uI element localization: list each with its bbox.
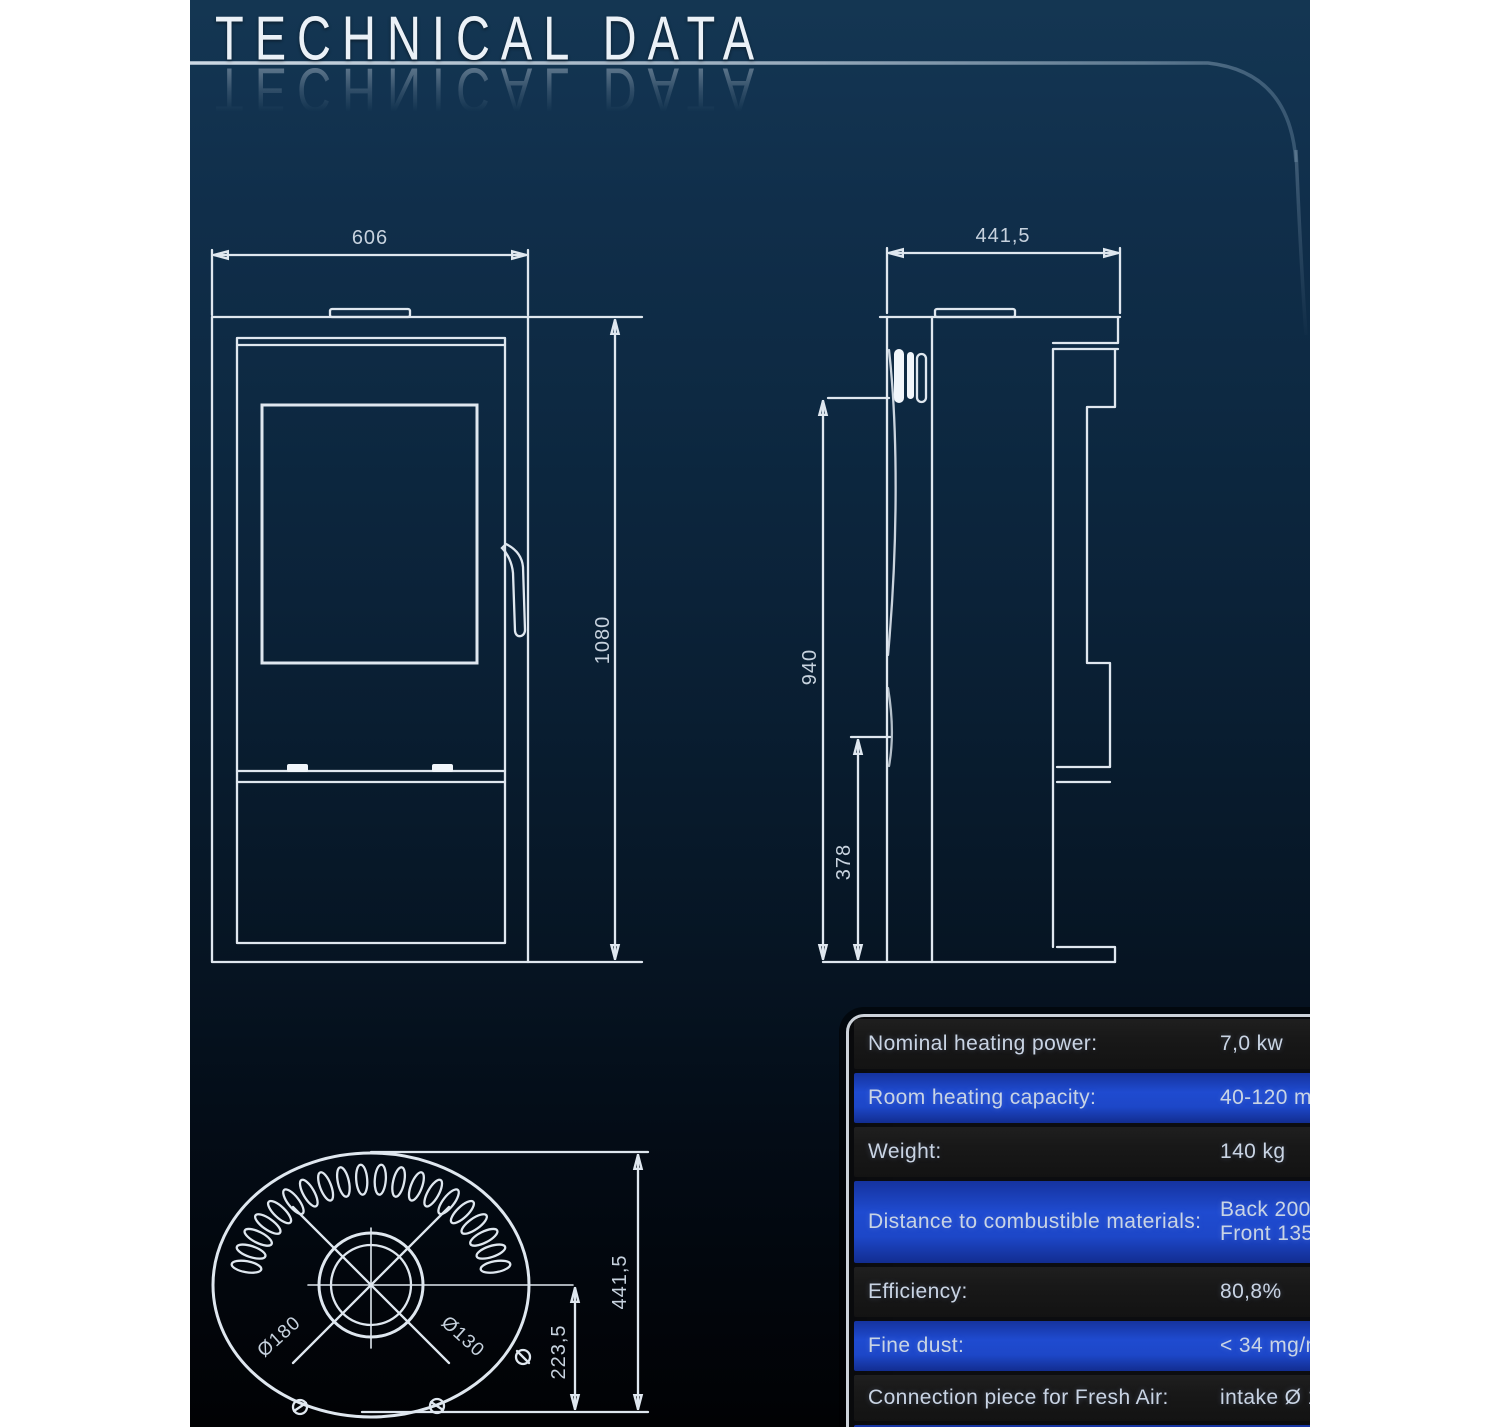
table-row: Fine dust: < 34 mg/m³ [854, 1321, 1310, 1371]
top-depth-dim-label: 441,5 [609, 1254, 631, 1309]
table-row: Distance to combustible materials: Back … [854, 1181, 1310, 1263]
spec-value: 40-120 m² [1220, 1086, 1310, 1110]
table-row: Nominal heating power: 7,0 kw [854, 1019, 1310, 1069]
spec-value: 140 kg [1220, 1140, 1310, 1164]
spec-label: Weight: [854, 1140, 1220, 1164]
spec-label: Nominal heating power: [854, 1032, 1220, 1056]
datasheet-page: { "page": { "title": "TECHNICAL DATA" },… [0, 0, 1500, 1427]
front-view-drawing: 606 1080 [212, 227, 642, 962]
table-row: Efficiency: 80,8% [854, 1267, 1310, 1317]
air-vent-slot [917, 354, 926, 402]
side-front-profile [1053, 317, 1118, 962]
spec-label: Room heating capacity: [854, 1086, 1220, 1110]
table-row: Weight: 140 kg [854, 1127, 1310, 1177]
spec-label: Fine dust: [854, 1334, 1220, 1358]
door-glass-window [262, 405, 477, 663]
side-height-dim-label: 940 [799, 649, 821, 685]
top-view-drawing: Ø180 Ø130 223,5 441,5 [213, 1152, 648, 1417]
air-vent-slot [907, 352, 914, 399]
spec-value: 80,8% [1220, 1280, 1310, 1304]
flue-inner-diameter-label: Ø130 [437, 1312, 489, 1361]
side-lower-height-dim-label: 378 [833, 844, 855, 880]
spec-value: 7,0 kw [1220, 1032, 1310, 1056]
spec-label: Efficiency: [854, 1280, 1220, 1304]
side-depth-dim-label: 441,5 [975, 225, 1030, 247]
hinge-tab-right [432, 764, 453, 772]
back-panel-curve-lower [888, 688, 892, 766]
spec-value: < 34 mg/m³ [1220, 1334, 1310, 1358]
table-row: Connection piece for Fresh Air: intake Ø… [854, 1375, 1310, 1421]
door-bottom-trim [237, 771, 505, 782]
stove-front-inner-body [237, 338, 505, 943]
spec-label: Connection piece for Fresh Air: [854, 1386, 1220, 1410]
spec-label: Distance to combustible materials: [854, 1210, 1220, 1234]
air-vent-slot [894, 349, 904, 403]
spec-value: Back 200mm/Side 200mm/ Front 1350mm [1220, 1198, 1310, 1246]
top-plate-lip [330, 309, 410, 317]
side-top-lip [935, 309, 1015, 317]
front-height-dim-label: 1080 [592, 616, 614, 665]
mounting-bolts [293, 1350, 530, 1414]
top-offset-dim-label: 223,5 [548, 1324, 570, 1379]
table-row: Room heating capacity: 40-120 m² [854, 1073, 1310, 1123]
hinge-tab-left [287, 764, 308, 772]
stove-front-outer-body [212, 317, 528, 962]
datasheet-panel: TECHNICAL DATA TECHNICAL DATA 606 [190, 0, 1310, 1427]
front-width-dim-label: 606 [352, 227, 388, 249]
side-view-drawing: 441,5 940 378 [799, 225, 1120, 962]
spec-table: Nominal heating power: 7,0 kw Room heati… [846, 1014, 1310, 1427]
spec-value: intake Ø 100mm [1220, 1386, 1310, 1410]
flue-outer-diameter-label: Ø180 [254, 1312, 306, 1361]
